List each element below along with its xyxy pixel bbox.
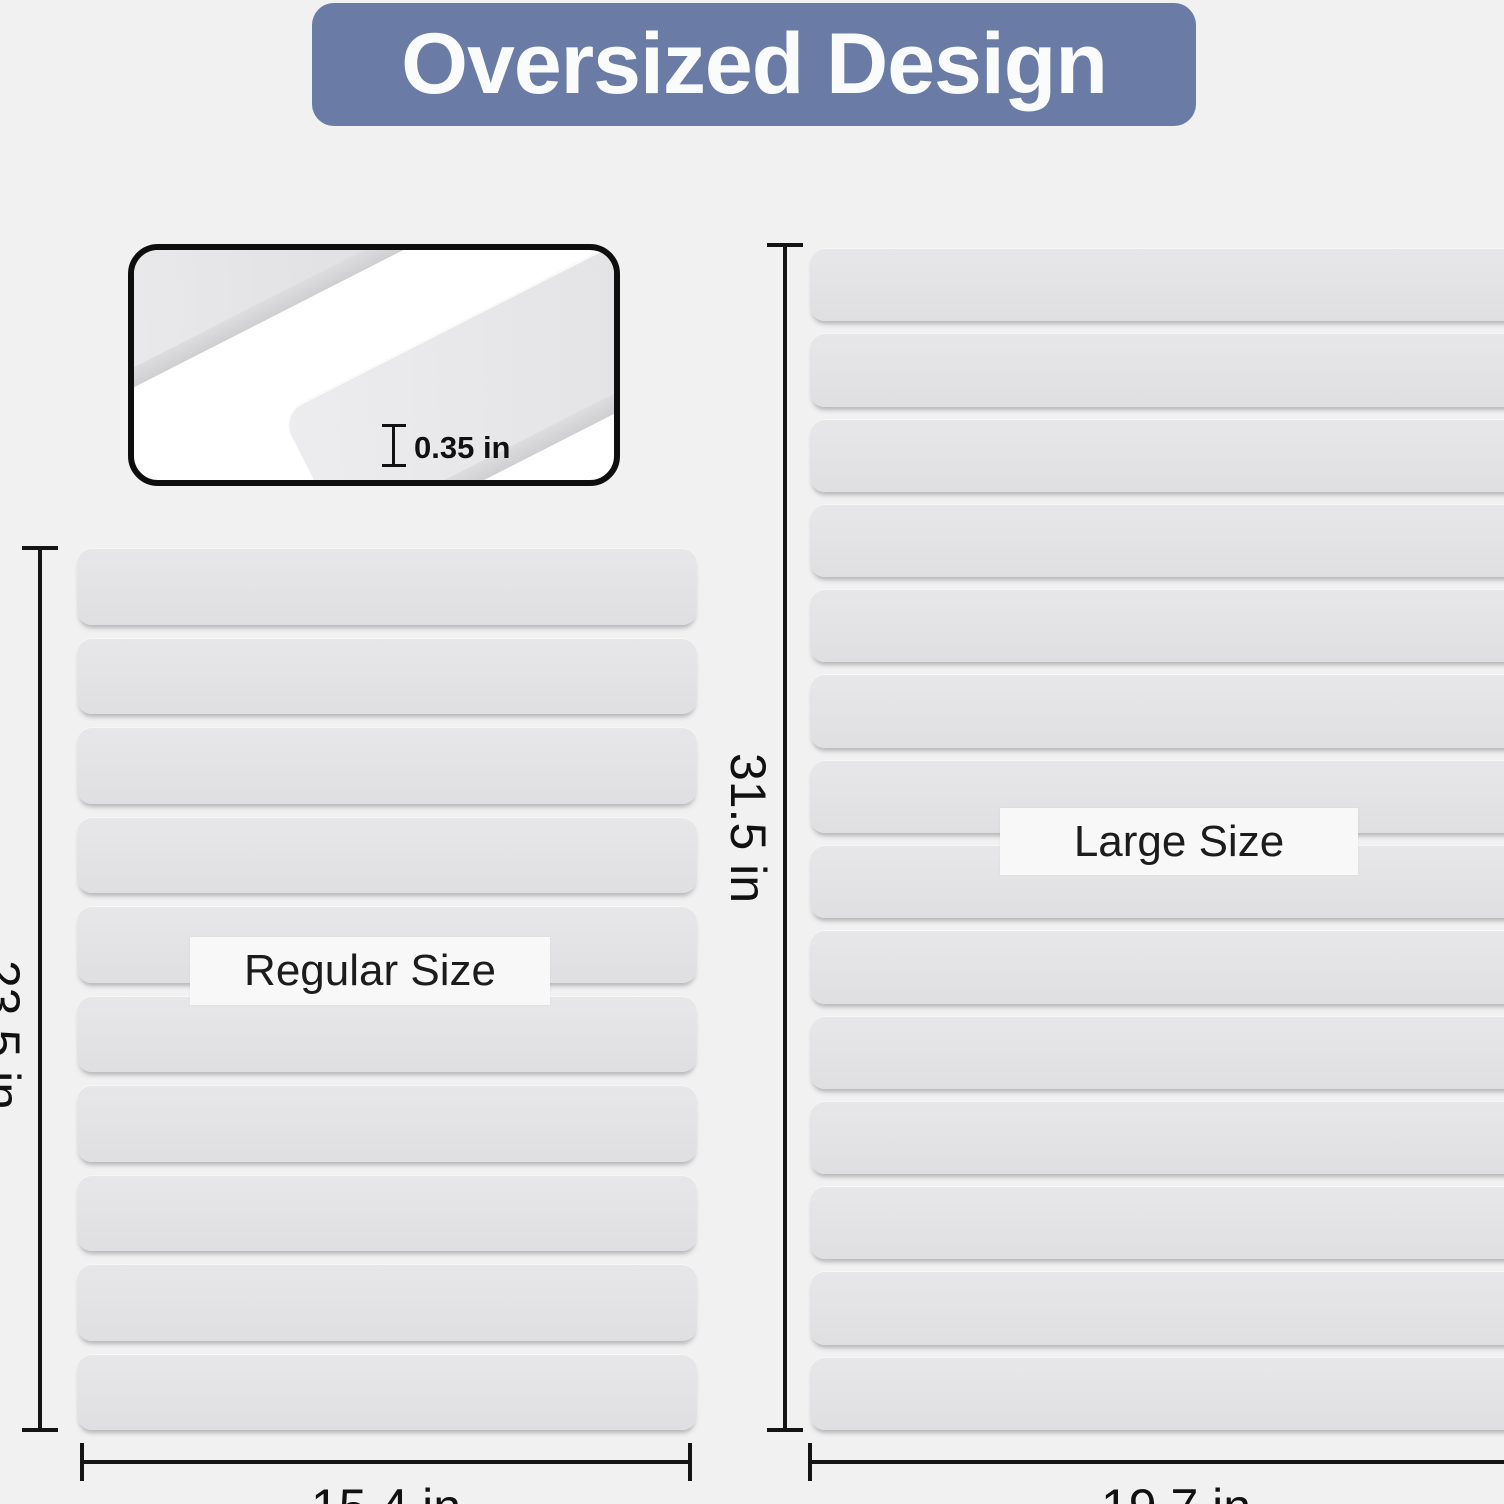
dimension-line [392,426,395,466]
mat-slat [77,1085,697,1162]
mat-slat [77,727,697,804]
mat-slat [810,1101,1504,1174]
mat-slat [810,419,1504,492]
large-size-tag: Large Size [1000,808,1358,875]
dimension-cap [382,464,406,467]
mat-slat [810,1186,1504,1259]
mat-slat [77,638,697,715]
thickness-inset: 0.35 in [128,244,620,486]
mat-slat [77,1354,697,1431]
mat-slat [810,504,1504,577]
mat-slat [810,589,1504,662]
mat-slat [77,1175,697,1252]
mat-slat [810,930,1504,1003]
mat-slat [77,1264,697,1341]
regular-height-value: 23.5 in [0,935,28,1135]
mat-slat [810,248,1504,321]
mat-slat [810,674,1504,747]
mat-slat [810,333,1504,406]
dimension-tick [688,1443,692,1481]
mat-slat [77,996,697,1073]
dimension-cap [22,1428,58,1432]
mat-slat [77,548,697,625]
mat-slat [810,1016,1504,1089]
large-width-dimension-line [808,1460,1504,1464]
product-infographic: Oversized Design 0.35 in Regular Size La… [0,0,1504,1504]
large-height-dimension-line [783,245,787,1432]
regular-width-value: 15.4 in [226,1478,546,1504]
thickness-dimension: 0.35 in [382,422,612,472]
large-height-value: 31.5 in [722,718,774,938]
thickness-value: 0.35 in [414,430,511,466]
page-title: Oversized Design [401,15,1107,114]
mat-slat [810,1357,1504,1430]
title-banner: Oversized Design [312,3,1196,126]
large-width-value: 19.7 in [1016,1478,1336,1504]
regular-height-dimension-line [38,548,42,1432]
mat-slat [77,817,697,894]
dimension-cap [767,1428,803,1432]
regular-size-label: Regular Size [244,946,496,996]
regular-size-tag: Regular Size [190,937,550,1005]
mat-slat [810,1271,1504,1344]
large-size-label: Large Size [1074,817,1284,867]
regular-width-dimension-line [80,1460,692,1464]
